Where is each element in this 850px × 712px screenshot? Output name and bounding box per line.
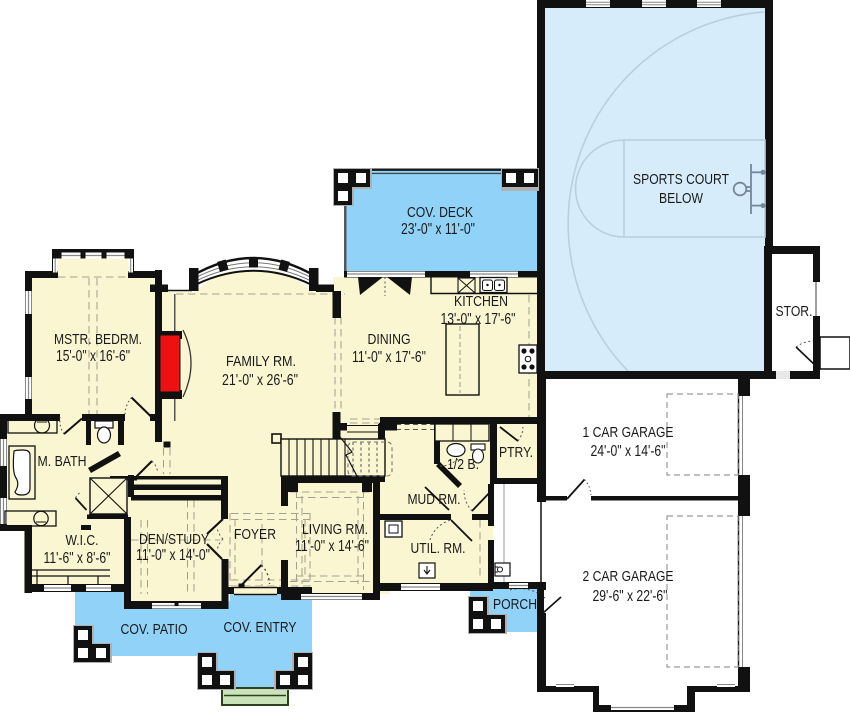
svg-text:COV. ENTRY: COV. ENTRY bbox=[224, 620, 297, 636]
svg-text:KITCHEN: KITCHEN bbox=[454, 294, 508, 310]
svg-text:23'-0" x 11'-0": 23'-0" x 11'-0" bbox=[401, 221, 475, 238]
svg-text:13'-0" x 17'-6": 13'-0" x 17'-6" bbox=[441, 311, 516, 328]
svg-text:BELOW: BELOW bbox=[659, 191, 703, 207]
svg-text:DINING: DINING bbox=[368, 332, 411, 348]
svg-text:11'-0" x 17'-6": 11'-0" x 17'-6" bbox=[352, 349, 426, 366]
svg-text:SPORTS COURT: SPORTS COURT bbox=[633, 172, 729, 188]
svg-text:M. BATH: M. BATH bbox=[38, 454, 87, 470]
svg-text:COV. PATIO: COV. PATIO bbox=[121, 622, 188, 638]
svg-text:11'-0" x 14'-6": 11'-0" x 14'-6" bbox=[295, 538, 369, 555]
svg-text:29'-6" x 22'-6": 29'-6" x 22'-6" bbox=[593, 588, 668, 605]
svg-text:1/2 B.: 1/2 B. bbox=[447, 457, 479, 473]
svg-text:FAMILY RM.: FAMILY RM. bbox=[226, 354, 296, 370]
svg-text:MSTR. BEDRM.: MSTR. BEDRM. bbox=[54, 332, 142, 348]
svg-text:1 CAR GARAGE: 1 CAR GARAGE bbox=[583, 425, 674, 441]
svg-text:15'-0" x 16'-6": 15'-0" x 16'-6" bbox=[56, 348, 130, 365]
svg-text:11'-0" x 14'-0": 11'-0" x 14'-0" bbox=[136, 547, 210, 564]
svg-text:LIVING RM.: LIVING RM. bbox=[302, 522, 368, 538]
svg-text:W.I.C.: W.I.C. bbox=[66, 533, 99, 549]
svg-text:COV. DECK: COV. DECK bbox=[407, 205, 473, 221]
svg-text:STOR.: STOR. bbox=[776, 304, 813, 320]
svg-text:FOYER: FOYER bbox=[234, 527, 276, 543]
svg-text:PTRY.: PTRY. bbox=[499, 445, 533, 461]
svg-text:DEN/STUDY: DEN/STUDY bbox=[139, 532, 209, 548]
svg-text:PORCH: PORCH bbox=[493, 597, 537, 613]
svg-text:11'-6" x 8'-6": 11'-6" x 8'-6" bbox=[44, 550, 111, 567]
svg-text:UTIL. RM.: UTIL. RM. bbox=[411, 541, 466, 557]
svg-text:21'-0" x 26'-6": 21'-0" x 26'-6" bbox=[222, 372, 298, 389]
svg-text:MUD RM.: MUD RM. bbox=[408, 492, 461, 508]
svg-text:24'-0" x 14'-6": 24'-0" x 14'-6" bbox=[591, 443, 666, 460]
svg-text:2 CAR GARAGE: 2 CAR GARAGE bbox=[583, 569, 674, 585]
